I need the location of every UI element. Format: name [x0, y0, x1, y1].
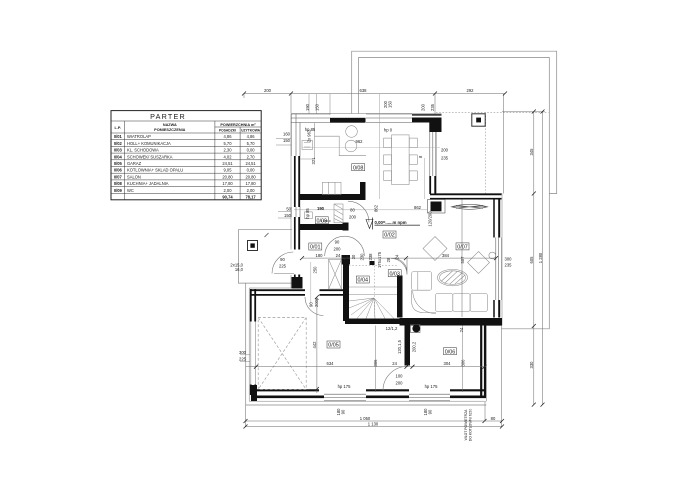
svg-text:384: 384: [442, 253, 450, 258]
svg-text:HOLL+ KOMUNIKACJA: HOLL+ KOMUNIKACJA: [127, 141, 171, 146]
svg-text:225: 225: [239, 357, 247, 362]
svg-text:hp 85: hp 85: [305, 208, 310, 219]
svg-text:POMIESZCZENIA: POMIESZCZENIA: [154, 128, 185, 132]
svg-text:1 280: 1 280: [538, 252, 543, 263]
svg-text:235: 235: [505, 263, 513, 268]
svg-text:90: 90: [309, 302, 314, 307]
svg-text:2x 962: 2x 962: [307, 129, 312, 142]
svg-text:300: 300: [239, 350, 247, 355]
svg-text:120,1,5: 120,1,5: [397, 339, 402, 354]
svg-text:WIATROLAP: WIATROLAP: [127, 134, 151, 139]
svg-text:5,70: 5,70: [247, 141, 256, 146]
svg-text:24: 24: [395, 254, 400, 259]
svg-text:KUCHNIA+ JADALNIA: KUCHNIA+ JADALNIA: [127, 181, 169, 186]
svg-text:30: 30: [351, 254, 356, 259]
svg-text:0/07: 0/07: [457, 245, 468, 251]
svg-text:hp 0: hp 0: [384, 128, 393, 133]
svg-text:28: 28: [386, 257, 391, 262]
svg-text:100: 100: [396, 374, 404, 379]
svg-text:962: 962: [356, 139, 364, 144]
svg-text:UZYTKOWA: UZYTKOWA: [241, 129, 260, 133]
svg-text:4,86: 4,86: [224, 134, 233, 139]
svg-text:0/09: 0/09: [317, 218, 328, 224]
svg-text:150: 150: [284, 213, 292, 218]
svg-text:78,17: 78,17: [245, 194, 256, 199]
svg-text:150: 150: [283, 138, 291, 143]
svg-text:862: 862: [414, 205, 422, 210]
svg-text:17,80: 17,80: [222, 181, 233, 186]
svg-text:80: 80: [350, 208, 355, 213]
svg-text:175x175: 175x175: [377, 251, 382, 268]
svg-text:1 130: 1 130: [368, 421, 379, 426]
svg-text:200: 200: [441, 148, 449, 153]
svg-text:235: 235: [430, 103, 435, 111]
svg-text:KOTLOWNIA+ SKLAD OPALU: KOTLOWNIA+ SKLAD OPALU: [127, 168, 183, 173]
svg-text:0/07: 0/07: [114, 174, 123, 179]
svg-text:50: 50: [286, 207, 291, 212]
svg-text:90: 90: [341, 409, 346, 414]
svg-text:0/04: 0/04: [358, 278, 369, 284]
svg-text:90: 90: [428, 409, 433, 414]
svg-text:0/08: 0/08: [114, 181, 123, 186]
svg-text:321: 321: [311, 157, 316, 165]
svg-text:200: 200: [421, 103, 426, 111]
svg-text:0/05: 0/05: [114, 161, 123, 166]
svg-text:235: 235: [441, 156, 449, 161]
svg-text:200: 200: [396, 381, 404, 386]
svg-text:180: 180: [316, 253, 324, 258]
svg-text:9,05: 9,05: [224, 168, 233, 173]
svg-text:90,74: 90,74: [222, 194, 233, 199]
svg-text:0/08: 0/08: [353, 165, 364, 171]
svg-text:160: 160: [283, 132, 291, 137]
svg-text:24,51: 24,51: [222, 161, 233, 166]
svg-text:306: 306: [373, 359, 378, 367]
svg-text:200: 200: [264, 88, 272, 93]
svg-text:292: 292: [467, 88, 475, 93]
svg-text:1 050: 1 050: [360, 416, 371, 421]
svg-text:POWIERZCHNIA m²: POWIERZCHNIA m²: [220, 123, 256, 127]
svg-text:5,70: 5,70: [224, 141, 233, 146]
svg-text:2,70: 2,70: [247, 154, 256, 159]
svg-text:0/05: 0/05: [328, 343, 339, 349]
svg-text:20,80: 20,80: [245, 174, 256, 179]
svg-text:190: 190: [317, 206, 325, 211]
svg-text:300: 300: [505, 257, 513, 262]
svg-text:24,51: 24,51: [245, 161, 256, 166]
svg-text:PARTER: PARTER: [150, 112, 186, 121]
svg-text:hp 175: hp 175: [338, 384, 351, 389]
svg-text:200: 200: [349, 215, 357, 220]
svg-text:304: 304: [444, 361, 452, 366]
svg-text:GARAZ: GARAZ: [127, 161, 142, 166]
svg-text:330: 330: [529, 361, 534, 369]
svg-text:0/02: 0/02: [114, 141, 123, 146]
svg-text:306: 306: [461, 359, 466, 367]
svg-text:0,00: 0,00: [247, 148, 256, 153]
svg-text:442: 442: [312, 341, 317, 349]
svg-text:0/01: 0/01: [114, 134, 123, 139]
svg-text:80: 80: [491, 416, 496, 421]
svg-text:0/02: 0/02: [384, 233, 395, 239]
svg-text:WC: WC: [127, 188, 134, 193]
svg-text:24: 24: [392, 361, 397, 366]
svg-text:0/03: 0/03: [389, 271, 400, 277]
svg-text:SALON: SALON: [127, 174, 141, 179]
svg-text:0/06: 0/06: [445, 349, 456, 355]
svg-text:NAZWA: NAZWA: [163, 123, 177, 127]
svg-text:638: 638: [360, 88, 368, 93]
svg-text:200,2: 200,2: [412, 341, 417, 352]
svg-text:0/09: 0/09: [114, 188, 123, 193]
svg-text:KL. SCHODOWA: KL. SCHODOWA: [127, 148, 159, 153]
svg-text:605: 605: [529, 256, 534, 264]
svg-text:862: 862: [374, 204, 379, 212]
svg-text:4,02: 4,02: [224, 154, 233, 159]
svg-text:634: 634: [327, 361, 335, 366]
svg-text:0/04: 0/04: [114, 154, 123, 159]
svg-text:200p: 200p: [314, 297, 319, 307]
svg-text:20,80: 20,80: [222, 174, 233, 179]
svg-text:345: 345: [529, 148, 534, 156]
svg-text:DO KOTLOWNI fi150: DO KOTLOWNI fi150: [469, 409, 473, 442]
svg-text:0/01: 0/01: [310, 245, 321, 251]
svg-text:hp 175: hp 175: [425, 384, 438, 389]
svg-text:0/03: 0/03: [114, 148, 123, 153]
svg-text:200: 200: [334, 247, 342, 252]
svg-text:POSADZKI: POSADZKI: [219, 129, 236, 133]
svg-text:190: 190: [305, 103, 310, 111]
svg-text:2,00: 2,00: [224, 188, 233, 193]
svg-text:150: 150: [388, 100, 393, 108]
svg-text:L.P.: L.P.: [115, 126, 121, 130]
svg-text:17,80: 17,80: [245, 181, 256, 186]
svg-text:90: 90: [280, 257, 285, 262]
svg-text:24: 24: [459, 327, 464, 332]
svg-text:230: 230: [360, 253, 365, 261]
svg-text:0/06: 0/06: [114, 168, 123, 173]
svg-text:4,86: 4,86: [247, 134, 256, 139]
svg-text:WLOT POWIETRZA: WLOT POWIETRZA: [464, 409, 468, 441]
svg-text:238: 238: [368, 253, 373, 261]
svg-text:SCHOWEK/ SUSZARKA: SCHOWEK/ SUSZARKA: [127, 154, 173, 159]
svg-text:507: 507: [460, 256, 465, 264]
svg-text:16,0: 16,0: [235, 267, 244, 272]
svg-text:150: 150: [315, 103, 320, 111]
svg-text:120/200: 120/200: [428, 211, 433, 227]
svg-text:24: 24: [336, 253, 341, 258]
svg-text:0,00=......m npm: 0,00=......m npm: [375, 220, 407, 225]
svg-text:225: 225: [279, 264, 287, 269]
svg-text:250: 250: [313, 266, 318, 274]
svg-text:12/1,2: 12/1,2: [386, 326, 398, 331]
svg-text:90: 90: [335, 240, 340, 245]
svg-text:2,30: 2,30: [224, 148, 233, 153]
svg-text:0,00: 0,00: [247, 168, 256, 173]
svg-text:2,00: 2,00: [247, 188, 256, 193]
